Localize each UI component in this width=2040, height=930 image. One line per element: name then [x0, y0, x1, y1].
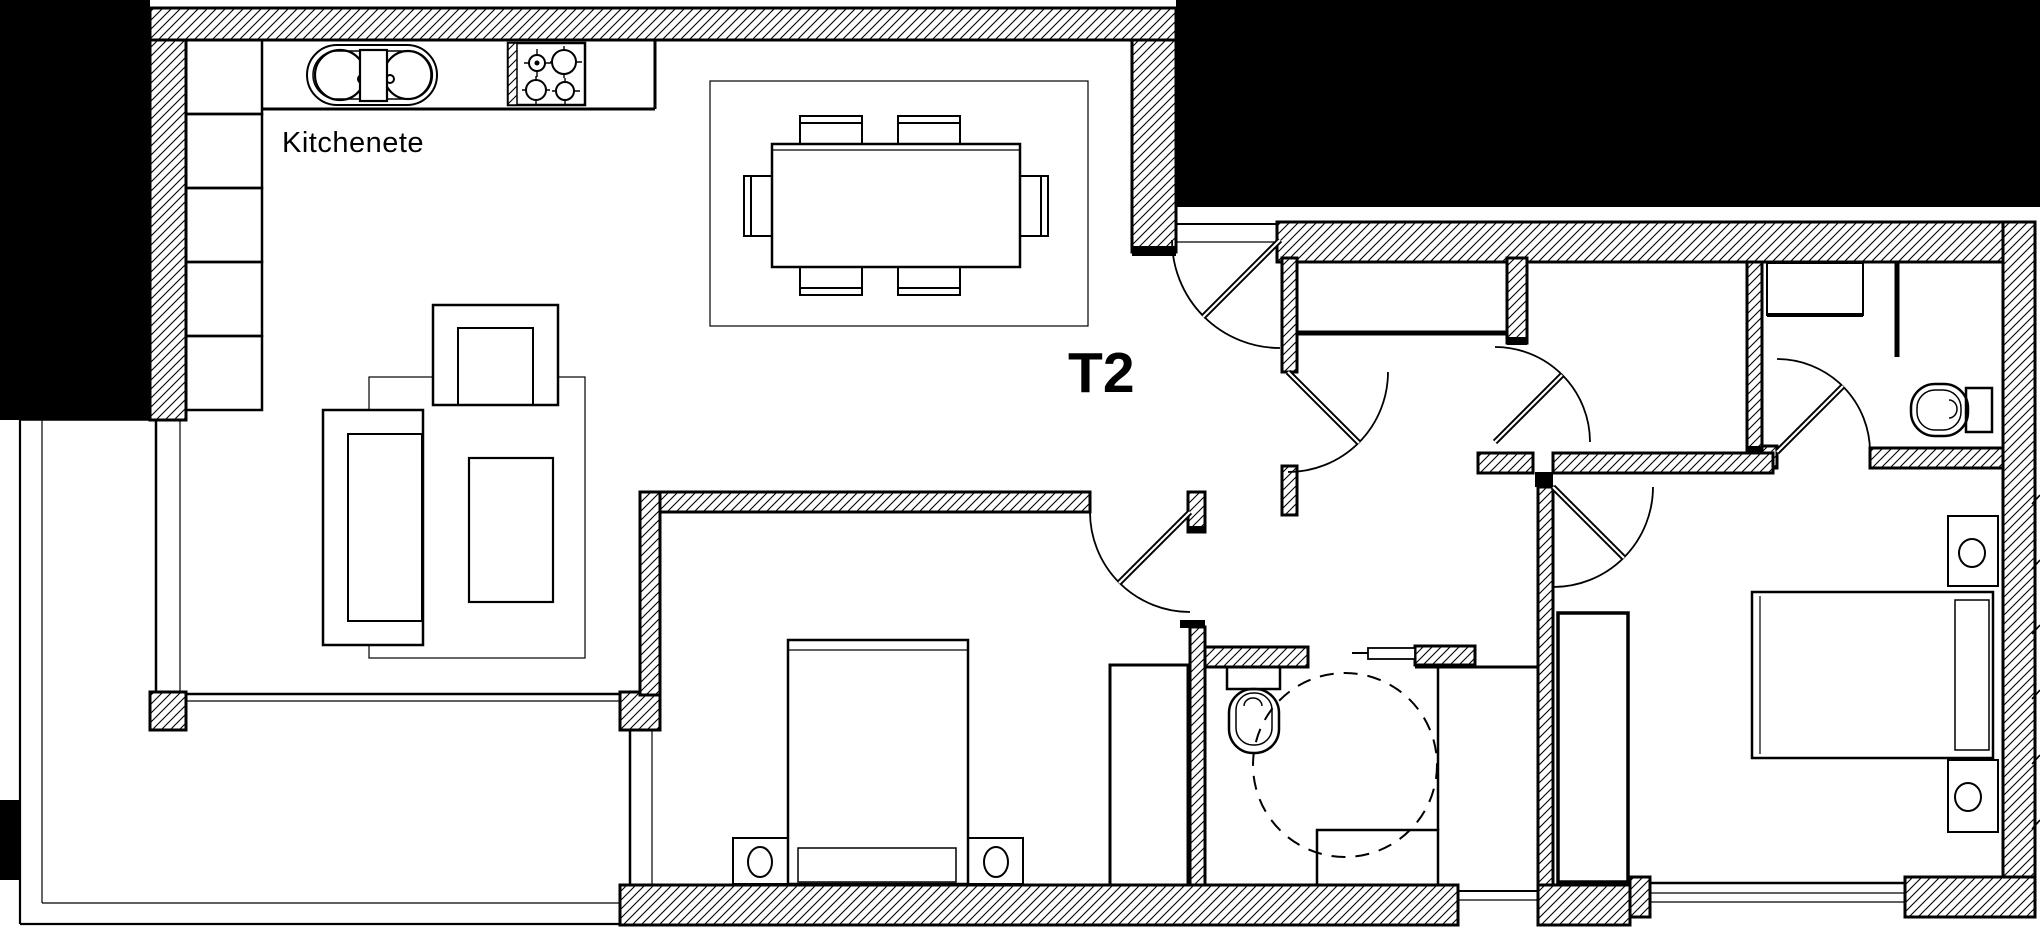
wall-hall-closet-left: [1282, 258, 1297, 372]
nightstand2-top: [1948, 516, 1998, 586]
entry-door: [1172, 240, 1280, 348]
wall-step-block: [620, 692, 660, 730]
hall-closet: [1297, 262, 1507, 333]
wall-bedroom1-left: [640, 492, 660, 695]
kitchen: [186, 40, 655, 410]
wall-bedroom2-left: [1538, 487, 1553, 913]
wall-hall-jog: [1282, 466, 1297, 515]
lamp-icon: [984, 847, 1008, 877]
lamp-icon: [1955, 783, 1981, 811]
cap-door1-pillar: [1188, 526, 1205, 532]
bedroom2-door: [1553, 487, 1653, 587]
wall-bottom-b2-left: [1630, 877, 1650, 917]
bed2-headboard: [1955, 600, 1989, 750]
armchair-icon: [433, 305, 558, 405]
bedroom-2-furniture: [1558, 516, 1998, 882]
coffee-table-icon: [469, 458, 553, 602]
lamp-icon: [1959, 539, 1985, 567]
floor-plan-canvas: Kitchenete T2: [0, 0, 2040, 930]
wall-ensuite-left: [1747, 262, 1762, 452]
ensuite-closet: [1767, 263, 1863, 315]
wall-bottom-b2-right: [1905, 877, 2035, 917]
kitchenette-label: Kitchenete: [282, 127, 424, 159]
floor-plan-drawing: Kitchenete T2: [0, 0, 2040, 930]
wardrobe2: [1558, 613, 1628, 882]
wall-storage-bottom-b: [1553, 453, 1773, 473]
wall-corner-block-sw: [150, 692, 186, 730]
ensuite-fixtures: [1767, 263, 1992, 436]
dining-table: [772, 144, 1020, 267]
wall-bathroom1-left: [1190, 627, 1205, 885]
wall-bedroom2-left-foot: [1538, 885, 1630, 925]
black-area-left-strip: [0, 800, 20, 880]
interior-partition-lines: [1297, 262, 1897, 830]
cooktop-icon: [508, 43, 585, 105]
wall-caps: [1132, 246, 1762, 628]
wall-left-outer: [150, 40, 186, 420]
bed2: [1752, 592, 1993, 758]
black-area-top-right: [1176, 0, 2040, 207]
cap-bathroom1-wall-top: [1180, 620, 1205, 628]
bedroom1-door: [1090, 512, 1190, 612]
wall-top-right-block: [1277, 222, 2003, 262]
ensuite-door: [1777, 359, 1870, 452]
wall-corridor-south: [640, 492, 1090, 512]
hall-corridor-door: [1288, 372, 1388, 472]
sofa-icon: [323, 410, 423, 645]
dining-set: [710, 81, 1088, 326]
cap-bedroom2-wall-top: [1535, 472, 1553, 487]
wall-storage-bottom-a: [1478, 453, 1533, 473]
unit-type-label: T2: [1068, 341, 1135, 405]
cap-living-right-wall: [1132, 246, 1176, 256]
kitchen-cabinet-run: [186, 40, 262, 410]
toilet-icon: [1911, 384, 1992, 436]
lamp-icon: [748, 847, 772, 877]
bed1-headboard: [798, 848, 956, 882]
wall-right-outer: [2003, 222, 2035, 917]
black-area-top-left: [0, 0, 150, 420]
terrace-railing: [20, 420, 620, 924]
cap-ensuite-left-wall: [1747, 446, 1762, 452]
sofa-set: [323, 305, 585, 658]
wardrobe1: [1110, 665, 1188, 885]
wall-ensuite-bottom: [1870, 448, 2003, 468]
kitchen-sink-icon: [307, 45, 437, 105]
wall-bottom-main: [620, 885, 1458, 925]
cap-closet-right-wall: [1507, 337, 1527, 345]
bedroom-1-furniture: [733, 640, 1188, 885]
vanity-basin-icon: [1352, 648, 1415, 659]
wall-bathroom1-top: [1205, 647, 1308, 667]
wall-hall-closet-right: [1507, 258, 1527, 343]
wall-top-left-block: [150, 8, 1176, 40]
bathroom-1-fixtures: [1227, 648, 1438, 885]
wall-vanity-stub: [1415, 646, 1475, 665]
storage-door: [1495, 347, 1590, 442]
wall-living-right: [1132, 40, 1176, 252]
shower-tray: [1317, 830, 1438, 885]
